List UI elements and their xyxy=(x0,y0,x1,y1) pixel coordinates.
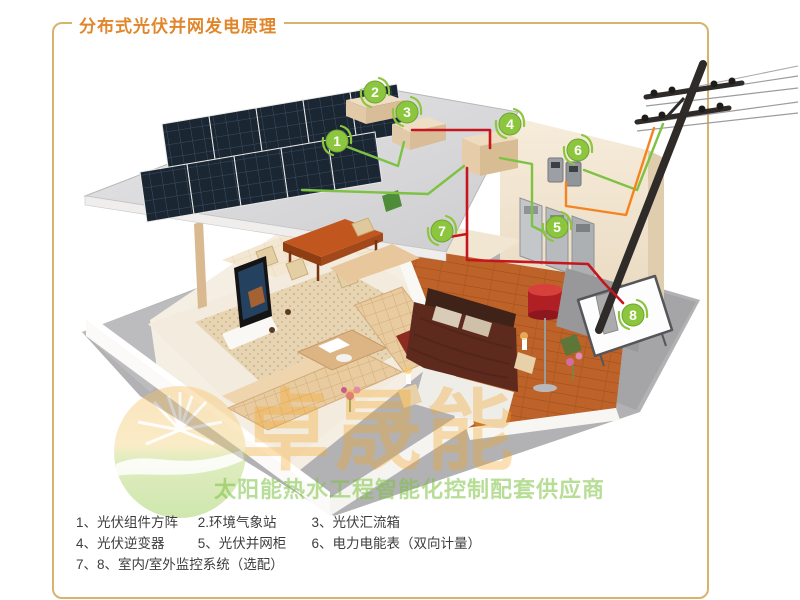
watermark-brand: 卓晟能 xyxy=(242,382,518,481)
svg-text:1: 1 xyxy=(333,133,341,149)
roof-assembly xyxy=(85,84,518,261)
svg-text:8: 8 xyxy=(629,307,637,323)
svg-text:5: 5 xyxy=(553,219,561,235)
legend-row-3: 7、8、室内/室外监控系统（选配） xyxy=(76,554,676,575)
legend-item-4: 4、光伏逆变器 xyxy=(76,533,180,554)
house-illustration: 卓晟能 太阳能热水工程智能化控制配套供应商 1 2 3 xyxy=(0,0,800,600)
legend-item-3: 3、光伏汇流箱 xyxy=(312,512,401,533)
svg-text:2: 2 xyxy=(371,84,379,100)
legend-item-5: 5、光伏并网柜 xyxy=(198,533,294,554)
legend-item-2: 2.环境气象站 xyxy=(198,512,294,533)
legend-item-6: 6、电力电能表（双向计量） xyxy=(312,533,482,554)
watermark-slogan: 太阳能热水工程智能化控制配套供应商 xyxy=(214,477,605,502)
svg-text:7: 7 xyxy=(438,223,446,239)
svg-text:3: 3 xyxy=(403,104,411,120)
legend-row-2: 4、光伏逆变器 5、光伏并网柜 6、电力电能表（双向计量） xyxy=(76,533,676,554)
diagram-page: 分布式光伏并网发电原理 xyxy=(0,0,800,600)
svg-text:4: 4 xyxy=(506,116,514,132)
legend-row-1: 1、光伏组件方阵 2.环境气象站 3、光伏汇流箱 xyxy=(76,512,676,533)
legend-item-1: 1、光伏组件方阵 xyxy=(76,512,180,533)
power-lines xyxy=(637,66,798,131)
legend-item-7-8: 7、8、室内/室外监控系统（选配） xyxy=(76,554,284,575)
svg-text:6: 6 xyxy=(574,142,582,158)
legend: 1、光伏组件方阵 2.环境气象站 3、光伏汇流箱 4、光伏逆变器 5、光伏并网柜… xyxy=(76,512,676,575)
